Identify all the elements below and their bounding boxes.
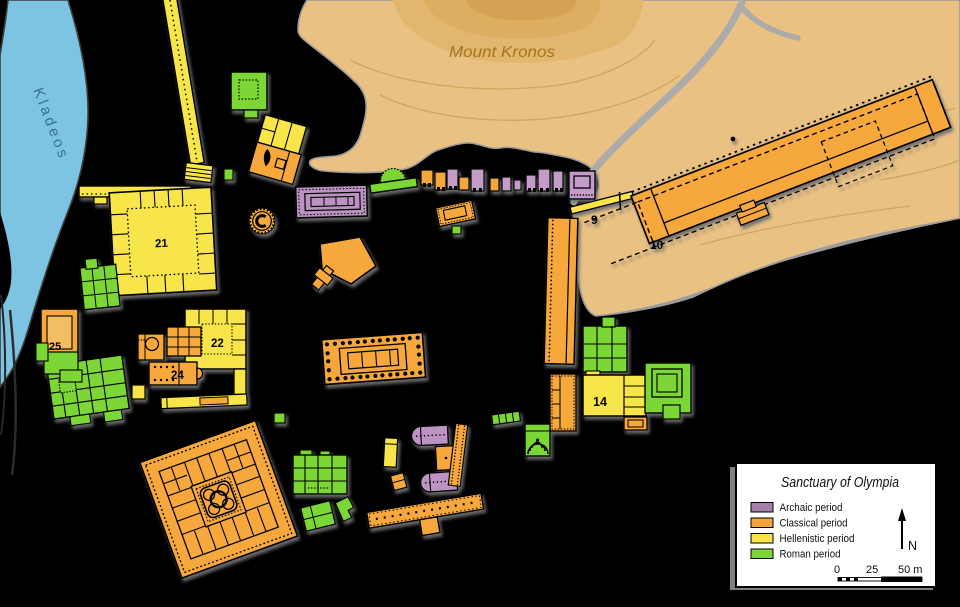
svg-text:Mount Kronos: Mount Kronos	[449, 44, 555, 61]
svg-text:0: 0	[834, 564, 840, 576]
svg-text:N: N	[908, 539, 917, 553]
svg-text:22: 22	[211, 338, 224, 350]
svg-text:14: 14	[593, 395, 607, 409]
svg-text:24: 24	[171, 370, 184, 382]
svg-text:Roman period: Roman period	[780, 549, 841, 561]
svg-text:Hellenistic period: Hellenistic period	[780, 533, 855, 545]
svg-text:25: 25	[866, 564, 878, 576]
svg-text:21: 21	[155, 238, 169, 251]
svg-text:10: 10	[650, 238, 664, 252]
svg-text:25: 25	[49, 341, 61, 353]
svg-text:Sanctuary of Olympia: Sanctuary of Olympia	[781, 474, 899, 491]
svg-text:Classical period: Classical period	[780, 518, 848, 530]
svg-text:9: 9	[591, 213, 598, 227]
svg-text:50 m: 50 m	[898, 564, 922, 576]
svg-text:Archaic period: Archaic period	[780, 502, 843, 514]
